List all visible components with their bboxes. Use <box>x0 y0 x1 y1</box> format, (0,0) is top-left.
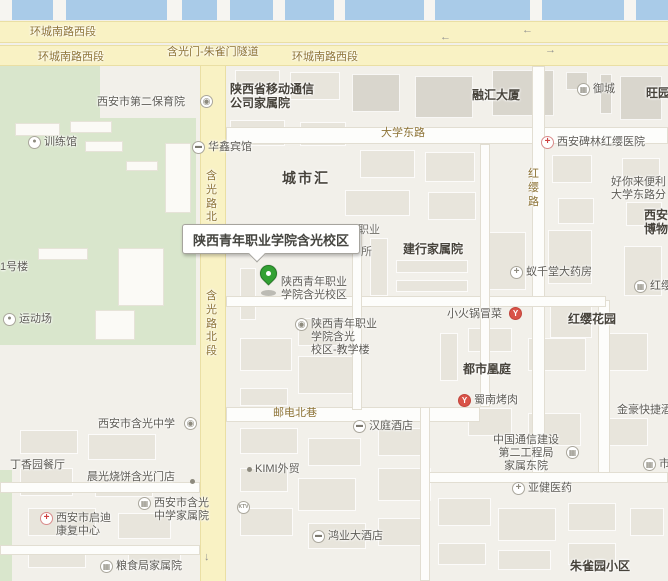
restaurant-icon: Y <box>458 394 471 407</box>
road-label-huancheng-1: 环城南路西段 <box>30 26 96 39</box>
ktv-icon: KTV <box>237 501 250 514</box>
poi-label-sports-field[interactable]: ●运动场 <box>3 313 52 326</box>
building-icon: ▦ <box>138 497 151 510</box>
poi-label-huaxin-hotel-text: 华鑫宾馆 <box>208 141 252 154</box>
poi-label-second-nursery[interactable]: 西安市第二保育院 <box>97 96 185 109</box>
poi-label-comm-construction-compound[interactable]: 中国通信建设第二工程局家属东院 <box>493 434 559 474</box>
area-label-xian-museum-text: 西安博物 <box>644 208 668 237</box>
poi-label-dingxiangyuan-restaurant-text: 丁香园餐厅 <box>10 459 65 472</box>
poi-label-yucheng[interactable]: ▦御城 <box>577 83 615 96</box>
poi-label-hanguang-middle-school[interactable]: 西安市含光中学 <box>98 418 175 431</box>
poi-label-yajian-pharmacy-text: 亚健医药 <box>528 482 572 495</box>
poi-label-haonilai-store-text: 好你来便利大学东路分 <box>611 176 666 202</box>
area-label-hongying-garden-text: 红缨花园 <box>568 312 616 326</box>
road-label-huancheng-3-text: 环城南路西段 <box>292 51 358 64</box>
poi-label-yiqiantang-pharmacy-text: 蚁千堂大药房 <box>526 266 592 279</box>
poi-label-teaching-building-text: 陕西青年职业学院含光校区-教学楼 <box>311 318 377 358</box>
poi-label-dingxiangyuan-restaurant[interactable]: 丁香园餐厅 <box>10 459 65 472</box>
icon-hanguang-middle-school[interactable]: ◉ <box>184 417 197 430</box>
partial-label-zhiye: 职业 <box>358 224 380 237</box>
building-icon: ▦ <box>100 560 113 573</box>
icon-comm-construction[interactable]: ▦ <box>566 446 579 459</box>
area-label-ronghui-tower[interactable]: 融汇大厦 <box>472 88 520 102</box>
area-label-chengshihui[interactable]: 城市汇 <box>282 170 330 187</box>
icon-xiaohuoguo[interactable]: Y <box>509 307 522 320</box>
poi-label-second-nursery-text: 西安市第二保育院 <box>97 96 185 109</box>
poi-label-comm-construction-compound-text: 中国通信建设第二工程局家属东院 <box>493 434 559 474</box>
poi-label-kimi-trade-text: KIMI外贸 <box>255 463 300 476</box>
icon-second-nursery[interactable]: ◉ <box>200 95 213 108</box>
map-labels-layer: 环城南路西段环城南路西段含光门-朱雀门隧道环城南路西段←←→↓陕西省移动通信公司… <box>0 0 668 581</box>
area-label-wangyuan[interactable]: 旺园 <box>646 86 668 100</box>
partial-label-zhiye-text: 职业 <box>358 224 380 237</box>
poi-label-yucheng-text: 御城 <box>593 83 615 96</box>
poi-label-hanting-hotel-text: 汉庭酒店 <box>369 420 413 433</box>
poi-label-teaching-building[interactable]: ◉陕西青年职业学院含光校区-教学楼 <box>295 318 377 358</box>
area-label-wangyuan-text: 旺园 <box>646 86 668 100</box>
lane-arrow-right-text: → <box>545 44 556 57</box>
road-label-huancheng-2: 环城南路西段 <box>38 51 104 64</box>
road-label-hanguang-north-text: 含光路北 <box>206 170 217 225</box>
road-label-hanguang-north-section-text: 含光路北段 <box>206 290 217 359</box>
pin-icon <box>256 261 280 285</box>
poi-label-shunan-bbq-text: 蜀南烤肉 <box>474 394 518 407</box>
pharmacy-icon: + <box>510 266 523 279</box>
partial-label-suo-text: 所 <box>361 246 372 259</box>
poi-label-sports-field-text: 运动场 <box>19 313 52 326</box>
area-label-ronghui-tower-text: 融汇大厦 <box>472 88 520 102</box>
poi-label-haonilai-store[interactable]: 好你来便利大学东路分 <box>611 176 666 202</box>
building-icon: ▦ <box>634 280 647 293</box>
road-label-daxue-east: 大学东路 <box>381 127 425 140</box>
lane-arrow-left-2: ← <box>522 24 533 37</box>
callout-text: 陕西青年职业学院含光校区 <box>193 230 349 249</box>
poi-label-pin-text-text: 陕西青年职业学院含光校区 <box>281 276 347 302</box>
poi-label-hongying-hospital-text: 西安碑林红缨医院 <box>557 136 645 149</box>
sports-icon: ● <box>28 136 41 149</box>
lane-arrow-left-1: ← <box>440 31 451 44</box>
poi-label-jinhao-express-hotel-text: 金豪快捷酒店 <box>617 404 668 417</box>
poi-label-pin-text[interactable]: 陕西青年职业学院含光校区 <box>281 276 347 302</box>
area-label-dushi-huangting[interactable]: 都市凰庭 <box>463 362 511 376</box>
school-icon: ◉ <box>184 417 197 430</box>
poi-label-hongying-partial[interactable]: ▦红缨 <box>634 280 668 293</box>
poi-label-qidi-rehab-center[interactable]: +西安市启迪康复中心 <box>40 512 111 538</box>
poi-label-hongying-hospital[interactable]: +西安碑林红缨医院 <box>541 136 645 149</box>
poi-label-right-edge-partial[interactable]: ▦市 <box>643 458 668 471</box>
lane-arrow-right: → <box>545 44 556 57</box>
poi-label-building-1[interactable]: 1号楼 <box>0 261 28 274</box>
poi-label-hanguang-school-compound[interactable]: ▦西安市含光中学家属院 <box>138 497 209 523</box>
poi-label-training-hall-text: 训练馆 <box>44 136 77 149</box>
pin-shadow <box>261 290 276 296</box>
poi-label-xiaohuoguo-maocai[interactable]: 小火锅冒菜 <box>447 308 502 321</box>
callout-bubble[interactable]: 陕西青年职业学院含光校区 <box>182 224 360 254</box>
area-label-jianhang-compound-text: 建行家属院 <box>403 242 463 256</box>
road-label-youdian-north-lane: 邮电北巷 <box>273 407 317 420</box>
road-label-hongying-text: 红缨路 <box>528 168 539 209</box>
pharmacy-icon: + <box>512 482 525 495</box>
road-label-tunnel-text: 含光门-朱雀门隧道 <box>167 46 259 59</box>
school-icon: ◉ <box>200 95 213 108</box>
area-label-zhuqueyuan-text: 朱雀园小区 <box>570 559 630 573</box>
poi-label-hongye-hotel[interactable]: ▬鸿业大酒店 <box>312 530 383 543</box>
poi-label-chenguang-shaobing-text: 晨光烧饼含光门店 <box>87 471 175 484</box>
poi-label-hanguang-school-compound-text: 西安市含光中学家属院 <box>154 497 209 523</box>
sports-icon: ● <box>3 313 16 326</box>
poi-label-yajian-pharmacy[interactable]: +亚健医药 <box>512 482 572 495</box>
lane-arrow-left-1-text: ← <box>440 31 451 44</box>
poi-label-right-edge-partial-text: 市 <box>659 458 668 471</box>
poi-label-qidi-rehab-center-text: 西安市启迪康复中心 <box>56 512 111 538</box>
area-label-dushi-huangting-text: 都市凰庭 <box>463 362 511 376</box>
road-label-hongying: 红缨路 <box>528 168 539 209</box>
road-label-huancheng-3: 环城南路西段 <box>292 51 358 64</box>
poi-label-xiaohuoguo-maocai-text: 小火锅冒菜 <box>447 308 502 321</box>
area-label-hongying-garden[interactable]: 红缨花园 <box>568 312 616 326</box>
road-label-hanguang-north-section: 含光路北段 <box>206 290 217 359</box>
area-label-xian-museum[interactable]: 西安博物 <box>644 208 668 237</box>
road-label-huancheng-2-text: 环城南路西段 <box>38 51 104 64</box>
poi-label-jinhao-express-hotel[interactable]: 金豪快捷酒店 <box>617 404 668 417</box>
poi-label-huaxin-hotel[interactable]: ▬华鑫宾馆 <box>192 141 252 154</box>
poi-label-hanguang-middle-school-text: 西安市含光中学 <box>98 418 175 431</box>
restaurant-icon: Y <box>509 307 522 320</box>
road-label-hanguang-north: 含光路北 <box>206 170 217 225</box>
building-icon: ▦ <box>566 446 579 459</box>
poi-label-training-hall[interactable]: ●训练馆 <box>28 136 77 149</box>
poi-label-liangshiju-compound[interactable]: ▦粮食局家属院 <box>100 560 182 573</box>
building-icon: ▦ <box>643 458 656 471</box>
poi-label-chenguang-shaobing[interactable]: 晨光烧饼含光门店 <box>87 471 175 484</box>
hospital-icon: + <box>541 136 554 149</box>
hotel-bed-icon: ▬ <box>353 420 366 433</box>
poi-label-hongye-hotel-text: 鸿业大酒店 <box>328 530 383 543</box>
area-label-chengshihui-text: 城市汇 <box>282 170 330 187</box>
map-canvas[interactable]: 环城南路西段环城南路西段含光门-朱雀门隧道环城南路西段←←→↓陕西省移动通信公司… <box>0 0 668 581</box>
building-icon: ▦ <box>577 83 590 96</box>
partial-label-suo: 所 <box>361 246 372 259</box>
road-label-daxue-east-text: 大学东路 <box>381 127 425 140</box>
icon-ktv[interactable]: KTV <box>237 501 250 514</box>
poi-label-kimi-trade[interactable]: KIMI外贸 <box>247 463 300 476</box>
poi-label-hanting-hotel[interactable]: ▬汉庭酒店 <box>353 420 413 433</box>
hotel-bed-icon: ▬ <box>192 141 205 154</box>
poi-label-shunan-bbq[interactable]: Y蜀南烤肉 <box>458 394 518 407</box>
lane-arrow-down-text: ↓ <box>204 551 210 564</box>
icon-chenguang-dot <box>190 475 195 484</box>
school-icon: ◉ <box>295 318 308 331</box>
road-label-huancheng-1-text: 环城南路西段 <box>30 26 96 39</box>
area-label-shaanxi-mobile-compound[interactable]: 陕西省移动通信公司家属院 <box>230 82 314 111</box>
poi-dot-icon <box>247 467 252 472</box>
area-label-zhuqueyuan[interactable]: 朱雀园小区 <box>570 559 630 573</box>
poi-dot-icon <box>190 479 195 484</box>
lane-arrow-down: ↓ <box>204 551 210 564</box>
lane-arrow-left-2-text: ← <box>522 24 533 37</box>
map-pin[interactable] <box>258 265 280 297</box>
area-label-jianhang-compound[interactable]: 建行家属院 <box>403 242 463 256</box>
poi-label-liangshiju-compound-text: 粮食局家属院 <box>116 560 182 573</box>
road-label-tunnel: 含光门-朱雀门隧道 <box>167 46 259 59</box>
area-label-shaanxi-mobile-compound-text: 陕西省移动通信公司家属院 <box>230 82 314 111</box>
poi-label-yiqiantang-pharmacy[interactable]: +蚁千堂大药房 <box>510 266 592 279</box>
hotel-bed-icon: ▬ <box>312 530 325 543</box>
road-label-youdian-north-lane-text: 邮电北巷 <box>273 407 317 420</box>
poi-label-hongying-partial-text: 红缨 <box>650 280 668 293</box>
hospital-icon: + <box>40 512 53 525</box>
poi-label-building-1-text: 1号楼 <box>0 261 28 274</box>
